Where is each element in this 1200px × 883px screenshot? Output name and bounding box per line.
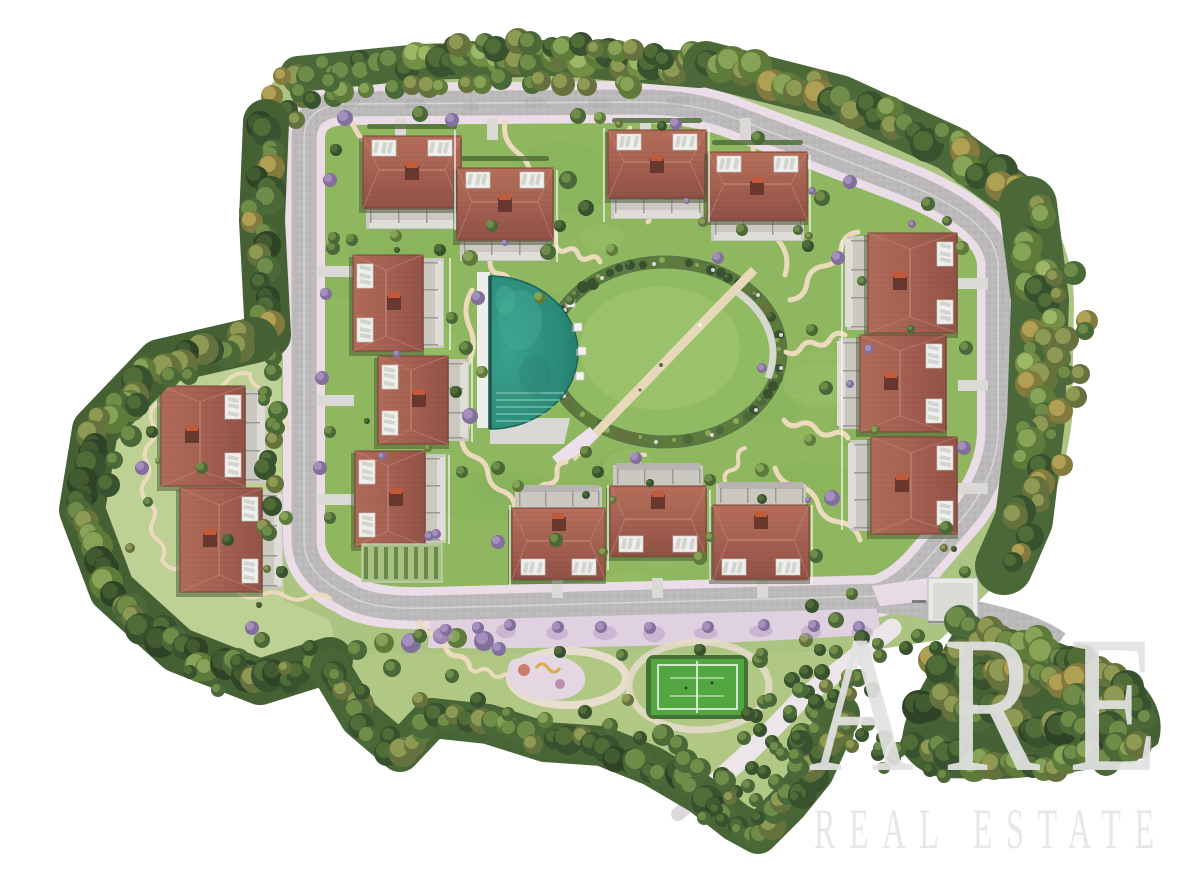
svg-text:REAL ESTATE: REAL ESTATE [814, 799, 1168, 862]
svg-text:ARE: ARE [809, 597, 1187, 813]
